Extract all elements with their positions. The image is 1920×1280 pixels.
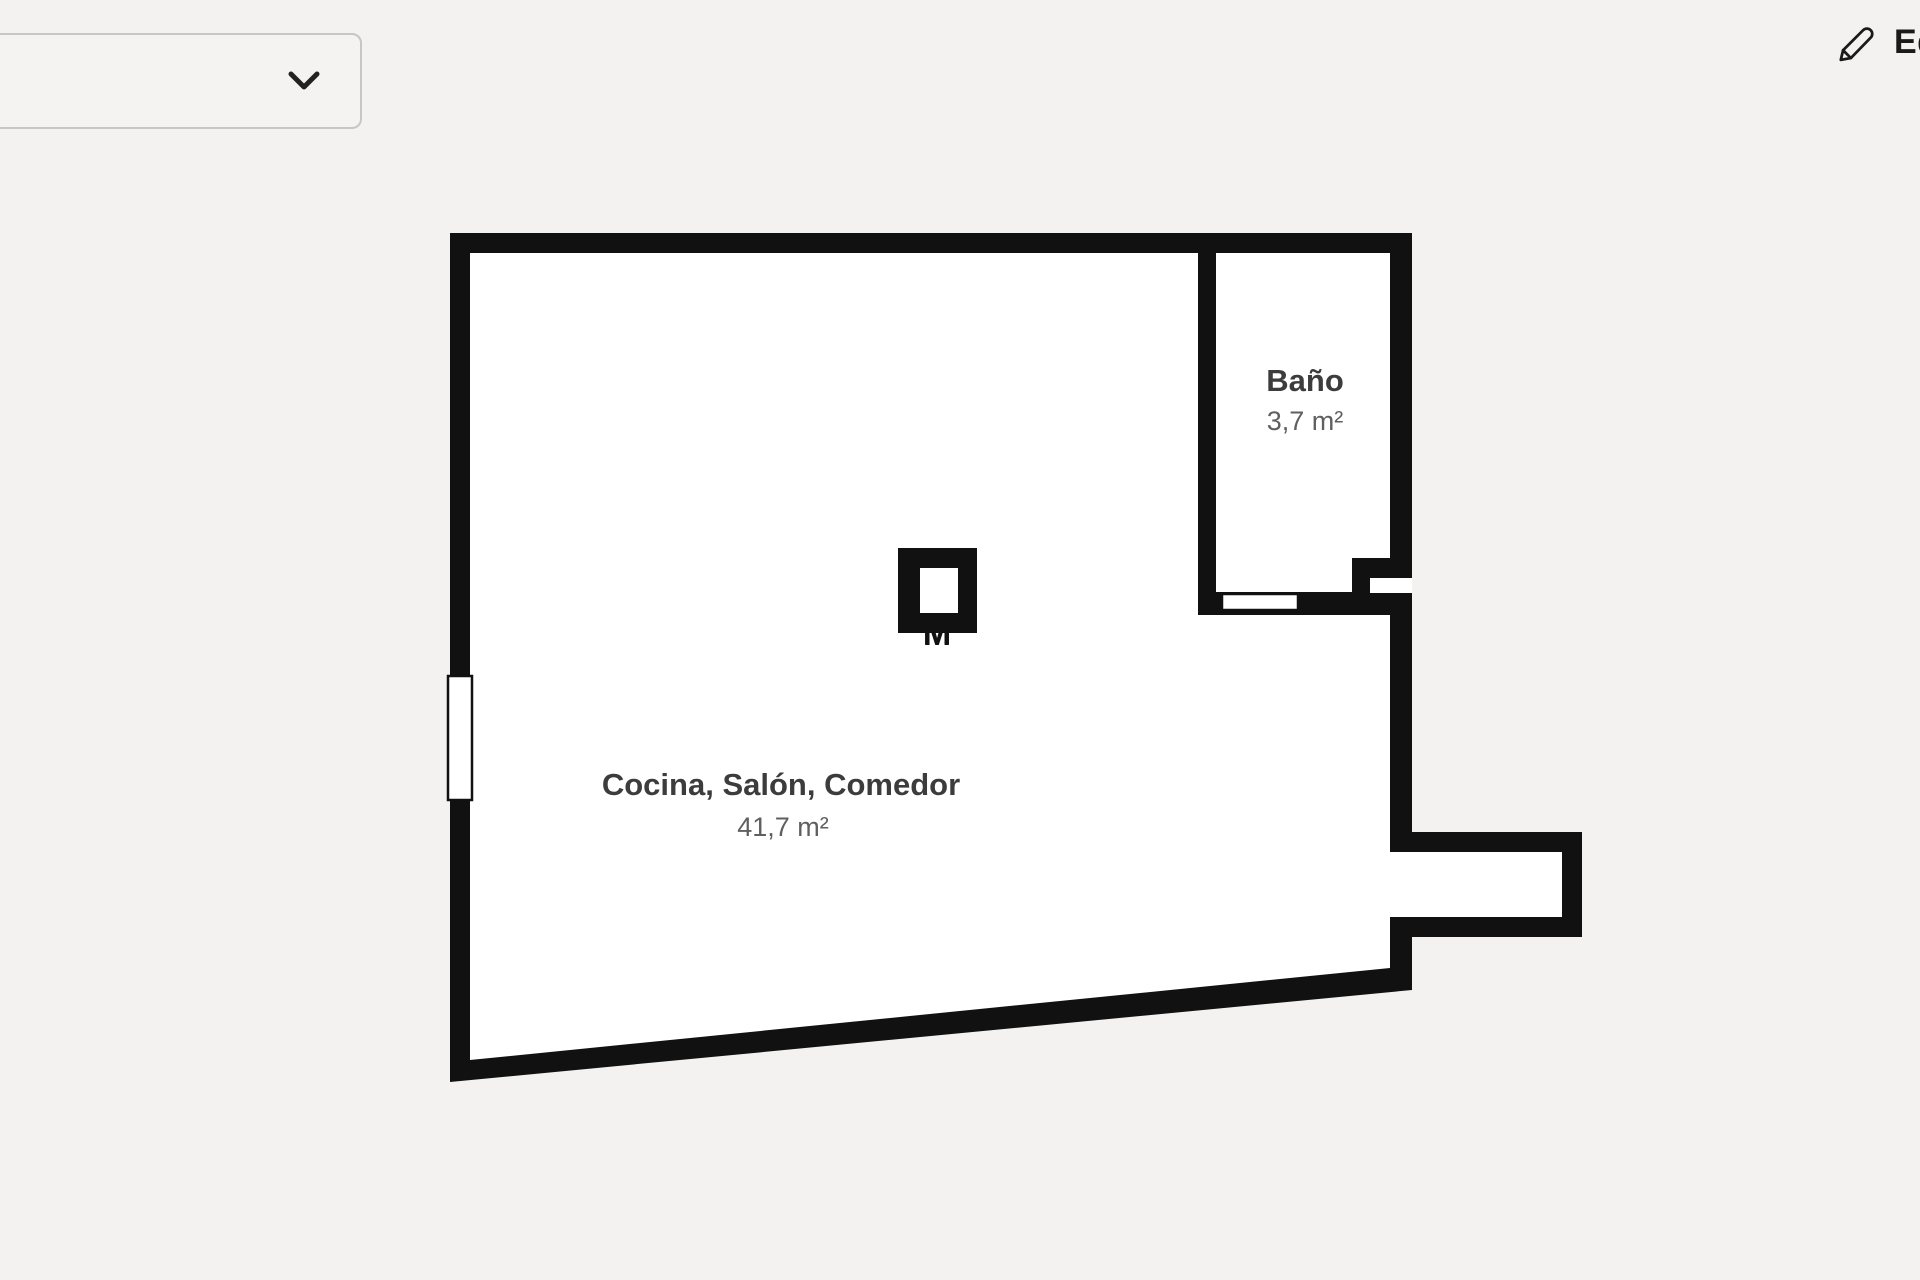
chevron-down-icon — [286, 69, 322, 93]
room-area-bathroom: 3,7 m² — [1267, 406, 1344, 436]
floorplan-viewer: Editar M M M Cocina, Salón, Comedor 41,7 — [0, 0, 1920, 1280]
room-area-main: 41,7 m² — [737, 812, 829, 842]
room-name-main: Cocina, Salón, Comedor — [602, 767, 960, 802]
right-wall-opening — [1370, 578, 1412, 593]
bathroom-door-opening — [1222, 594, 1298, 610]
edit-button-label: Editar — [1894, 23, 1920, 62]
bathroom-partition-wall — [1198, 253, 1216, 615]
pencil-icon — [1833, 18, 1877, 66]
door-niche-stub — [1352, 578, 1370, 593]
door-niche-wall — [1352, 558, 1412, 578]
edit-button[interactable]: Editar — [1833, 18, 1920, 66]
room-name-bathroom: Baño — [1266, 363, 1344, 398]
floor-selector-dropdown[interactable] — [0, 33, 362, 129]
window — [448, 676, 472, 800]
pillar-core — [920, 568, 958, 613]
floorplan-canvas: M M M Cocina, Salón, Comedor 41,7 m² Bañ… — [440, 220, 1600, 1100]
column-marker-bottom: M — [923, 615, 951, 653]
